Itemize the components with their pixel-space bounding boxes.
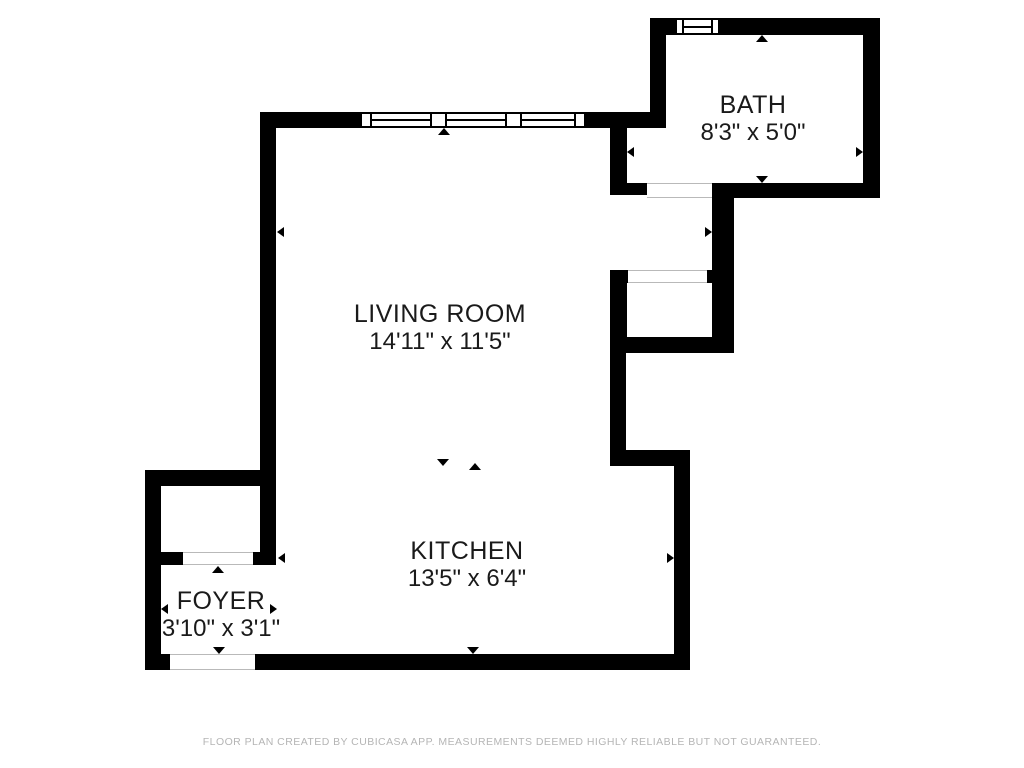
wall-bath-right (863, 18, 880, 198)
kitchen-measure-arrow-up (469, 463, 481, 470)
kitchen-measure-arrow-down (467, 647, 479, 654)
room-dims-living-room: 14'11" x 11'5" (354, 328, 526, 355)
room-label-bath: BATH 8'3" x 5'0" (701, 92, 806, 146)
room-name-kitchen: KITCHEN (408, 538, 526, 565)
wall-left-exterior (145, 470, 161, 670)
wall-closet-foyer-divider-right (253, 552, 276, 565)
kitchen-measure-arrow-left (278, 553, 285, 563)
room-name-foyer: FOYER (162, 588, 280, 615)
livingroom-measure-arrow-right (705, 227, 712, 237)
room-label-foyer: FOYER 3'10" x 3'1" (162, 588, 280, 642)
right-closet-opening (628, 270, 707, 283)
wall-bath-top-right (722, 18, 880, 35)
wall-right-vertical-thick (712, 183, 734, 353)
window-glass-line (360, 119, 586, 121)
room-dims-kitchen: 13'5" x 6'4" (408, 565, 526, 592)
entry-door-opening (170, 654, 255, 670)
livingroom-measure-arrow-down (437, 459, 449, 466)
livingroom-measure-arrow-left (277, 227, 284, 237)
wall-bath-bottom (712, 183, 880, 198)
window-mullion (505, 114, 522, 126)
foyer-measure-arrow-down (213, 647, 225, 654)
wall-bath-left (650, 18, 666, 128)
foyer-closet-door-opening (183, 552, 253, 565)
livingroom-window (358, 112, 588, 128)
wall-bottom-stub (145, 654, 170, 670)
footer-disclaimer: FLOOR PLAN CREATED BY CUBICASA APP. MEAS… (0, 736, 1024, 748)
bath-measure-arrow-left (627, 147, 634, 157)
bath-measure-arrow-up (756, 35, 768, 42)
room-dims-bath: 8'3" x 5'0" (701, 119, 806, 146)
bath-door-opening (647, 183, 712, 198)
window-mullion (574, 114, 586, 126)
wall-kitchen-right (674, 450, 690, 670)
wall-bottom-main (255, 654, 690, 670)
wall-rightcloset-top-stub-left (610, 270, 628, 283)
bath-measure-arrow-down (756, 176, 768, 183)
room-dims-foyer: 3'10" x 3'1" (162, 615, 280, 642)
bath-measure-arrow-right (856, 147, 863, 157)
room-name-bath: BATH (701, 92, 806, 119)
room-name-living-room: LIVING ROOM (354, 301, 526, 328)
wall-vestibule-stub (610, 183, 648, 195)
wall-closet-foyer-divider-left (145, 552, 183, 565)
room-label-living-room: LIVING ROOM 14'11" x 11'5" (354, 301, 526, 355)
wall-closet-top (145, 470, 276, 486)
wall-livingroom-left (260, 112, 276, 564)
bath-window (673, 18, 722, 35)
kitchen-measure-arrow-right (667, 553, 674, 563)
window-mullion (711, 20, 720, 33)
wall-livingroom-right-lower (610, 337, 626, 466)
window-mullion (675, 20, 684, 33)
window-mullion (430, 114, 447, 126)
floor-plan-canvas: BATH 8'3" x 5'0" LIVING ROOM 14'11" x 11… (0, 0, 1024, 768)
window-mullion (360, 114, 372, 126)
livingroom-measure-arrow-up (438, 128, 450, 135)
room-label-kitchen: KITCHEN 13'5" x 6'4" (408, 538, 526, 592)
foyer-measure-arrow-up (212, 566, 224, 573)
